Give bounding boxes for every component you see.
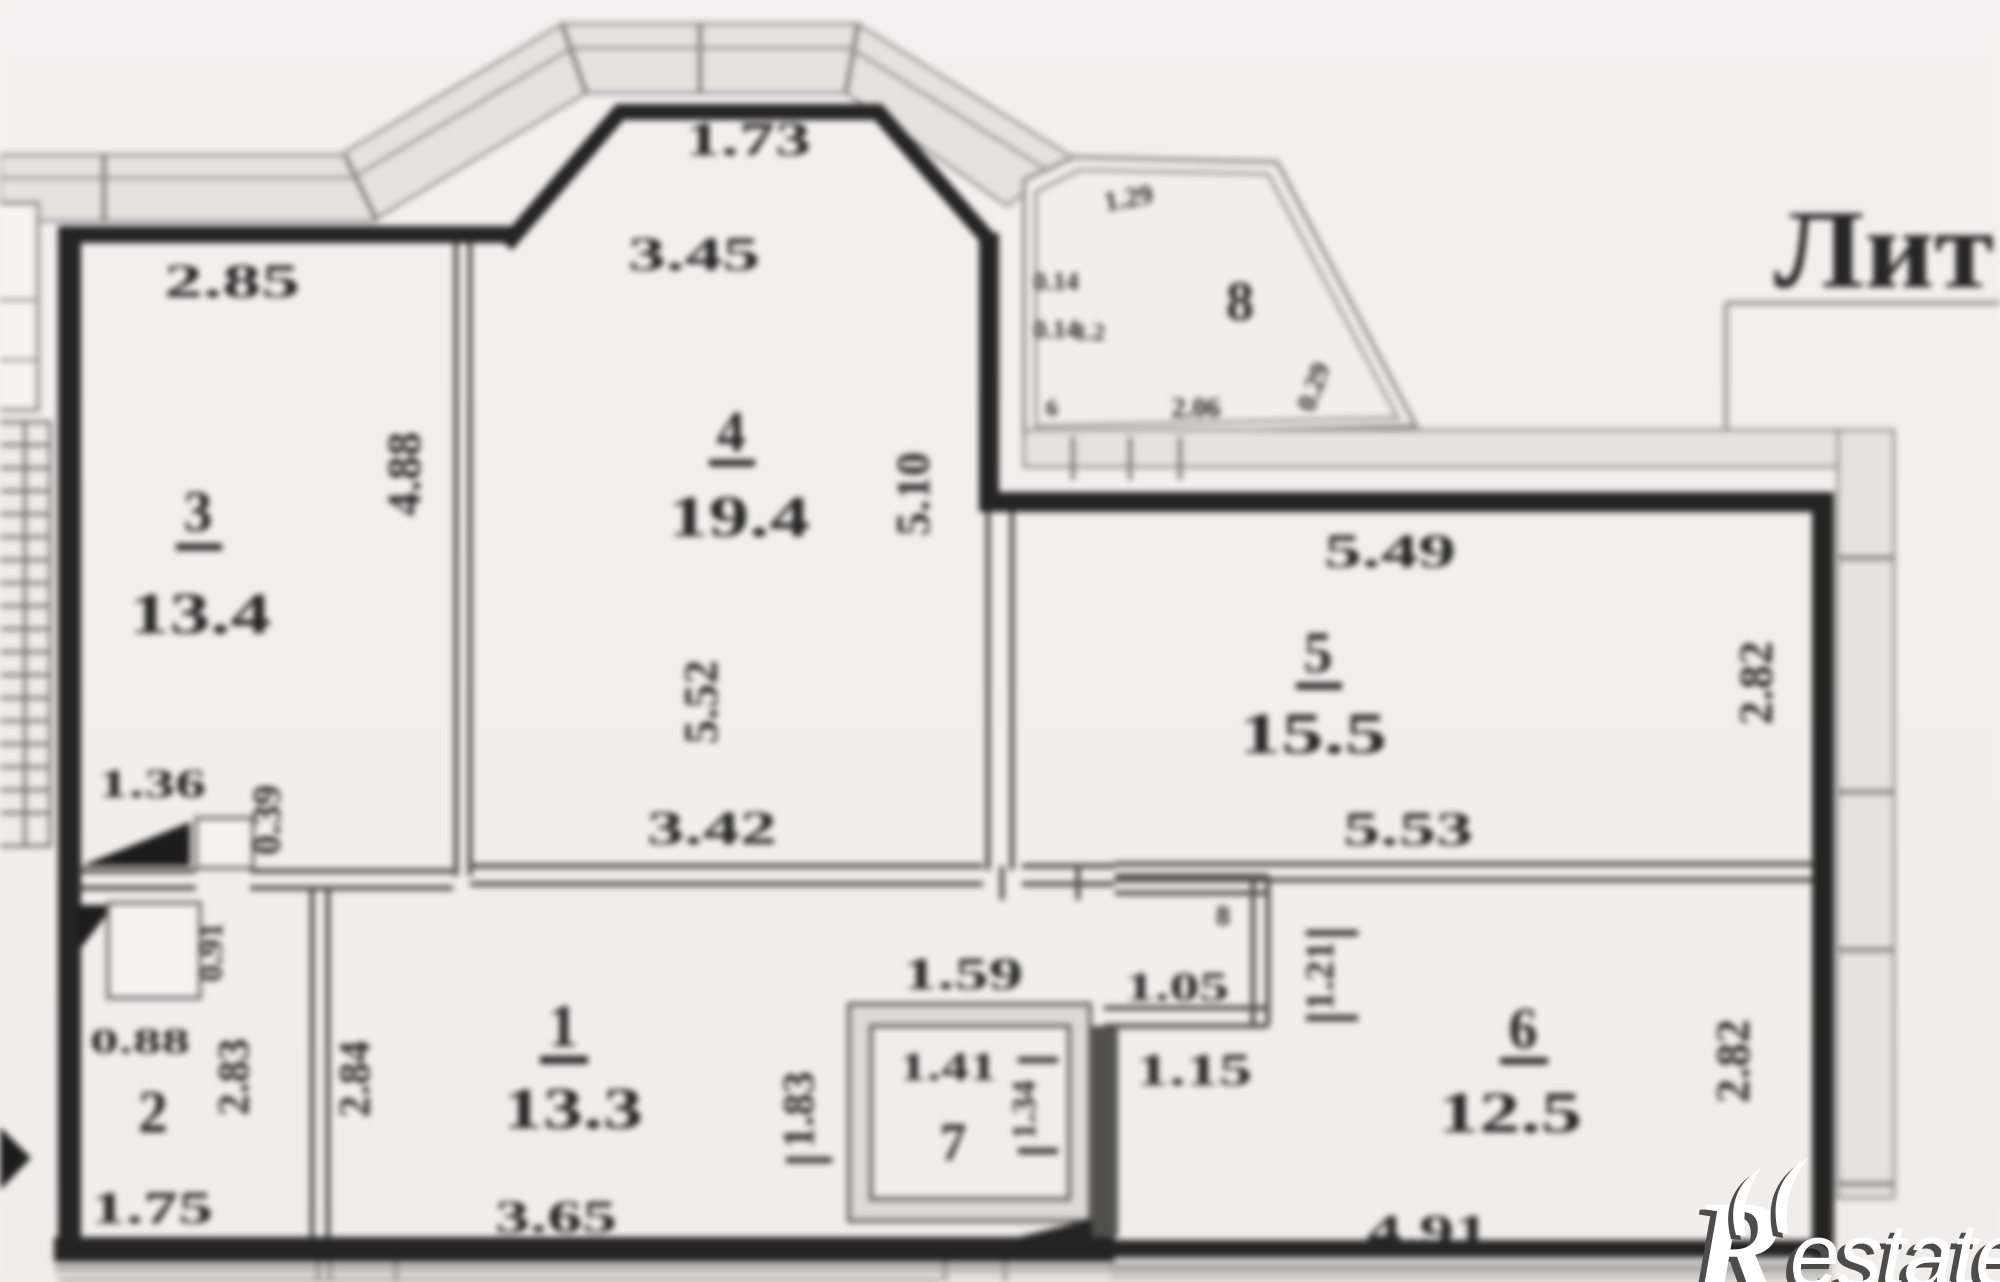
svg-text:estate: estate xyxy=(1790,1206,2000,1282)
